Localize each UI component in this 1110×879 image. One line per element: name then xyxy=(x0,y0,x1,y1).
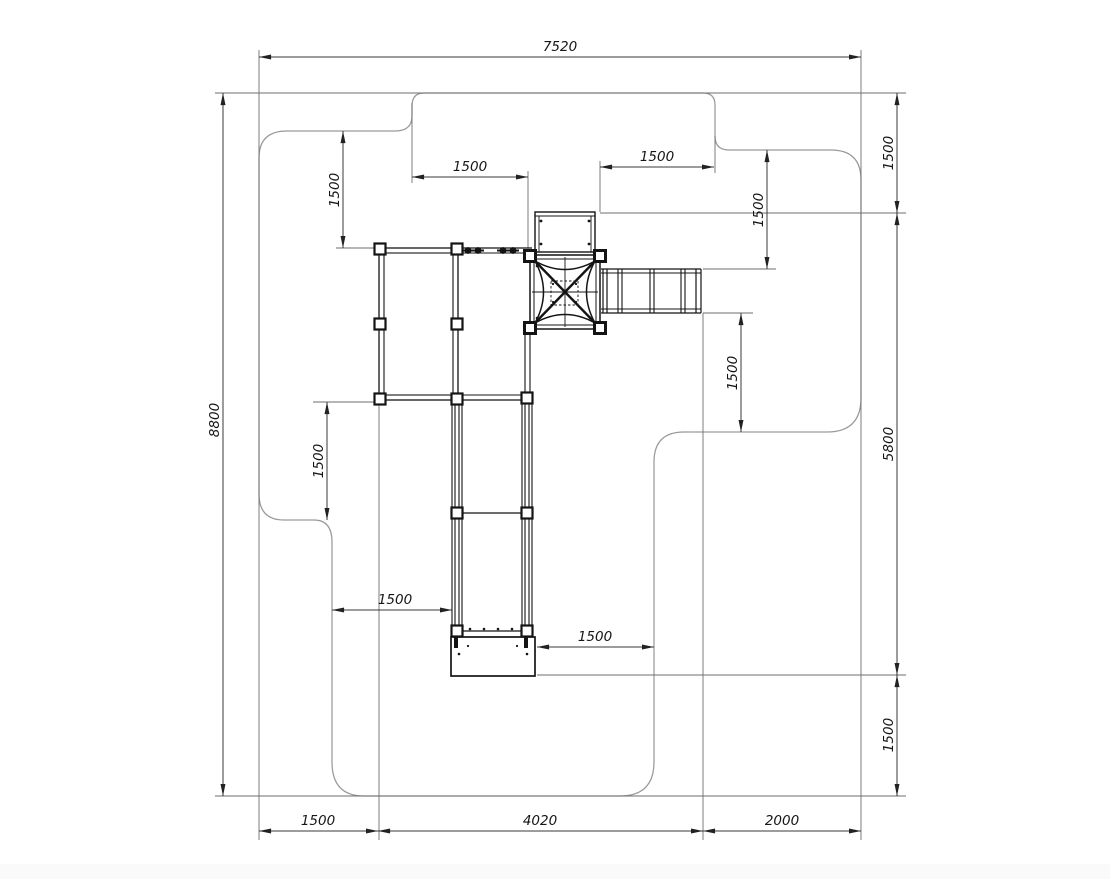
dim-bottom-right: 2000 xyxy=(703,813,861,831)
dim-top-right-vertical-label: 1500 xyxy=(751,193,767,227)
dim-bottom-left-label: 1500 xyxy=(301,813,335,829)
dim-top-right-vertical: 1500 xyxy=(751,150,767,269)
equipment-left-platform xyxy=(379,248,458,400)
drawing-canvas: 7520 8800 1500 5800 1500 1500 4020 2000 … xyxy=(0,0,1110,879)
dim-mid-left-horizontal-label: 1500 xyxy=(378,592,412,608)
dim-bottom-middle-label: 4020 xyxy=(523,813,557,829)
dim-top-right-horizontal-label: 1500 xyxy=(640,149,674,165)
dim-right-middle: 5800 xyxy=(881,213,897,675)
ramp-foot-icon xyxy=(524,637,528,648)
safety-zone-outline xyxy=(259,93,861,796)
dim-mid-left-horizontal: 1500 xyxy=(332,592,452,610)
dim-bottom-left: 1500 xyxy=(259,813,378,831)
dim-right-bottom-label: 1500 xyxy=(881,718,897,752)
dim-top-left-vertical-label: 1500 xyxy=(327,173,343,207)
dim-mid-left-vertical: 1500 xyxy=(311,402,327,520)
equipment-tower xyxy=(525,251,606,334)
dim-bottom-mid-horizontal-label: 1500 xyxy=(578,629,612,645)
dim-overall-width: 7520 xyxy=(259,39,861,57)
dim-right-middle-label: 5800 xyxy=(881,427,897,461)
equipment-ramp xyxy=(452,400,532,631)
dim-right-top-label: 1500 xyxy=(881,136,897,170)
dim-mid-right-vertical-label: 1500 xyxy=(725,356,741,390)
dim-top-left-horizontal: 1500 xyxy=(412,159,528,177)
dim-mid-right-vertical: 1500 xyxy=(725,313,741,432)
dim-top-left-vertical: 1500 xyxy=(327,131,343,248)
equipment-end-platform xyxy=(451,637,535,676)
page-bottom-strip xyxy=(0,864,1110,879)
dim-mid-left-vertical-label: 1500 xyxy=(311,444,327,478)
dim-top-left-horizontal-label: 1500 xyxy=(453,159,487,175)
dim-right-bottom: 1500 xyxy=(881,675,897,796)
plan-drawing: 7520 8800 1500 5800 1500 1500 4020 2000 … xyxy=(0,0,1110,879)
equipment-mid-platform-rails xyxy=(458,247,532,400)
equipment-slide xyxy=(601,269,701,313)
dim-overall-width-label: 7520 xyxy=(543,39,577,55)
dim-bottom-mid-horizontal: 1500 xyxy=(537,629,654,647)
dim-overall-height: 8800 xyxy=(207,93,223,796)
dim-bottom-right-label: 2000 xyxy=(765,813,799,829)
dim-overall-height-label: 8800 xyxy=(207,403,223,437)
dim-bottom-middle: 4020 xyxy=(378,813,703,831)
ramp-foot-icon xyxy=(454,637,458,648)
dim-right-top: 1500 xyxy=(881,93,897,213)
dim-top-right-horizontal: 1500 xyxy=(600,149,714,167)
equipment-balcony xyxy=(535,212,595,252)
